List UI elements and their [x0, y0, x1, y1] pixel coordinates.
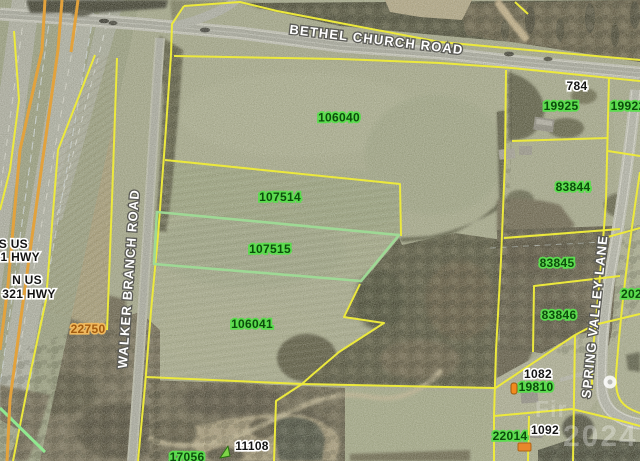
svg-text:83846: 83846	[542, 308, 577, 322]
svg-text:S US: S US	[0, 237, 28, 251]
svg-text:784: 784	[567, 79, 588, 93]
svg-text:20214: 20214	[621, 287, 640, 301]
svg-text:106041: 106041	[231, 317, 273, 331]
svg-text:Fir: Fir	[535, 396, 567, 422]
svg-text:83845: 83845	[540, 256, 575, 270]
svg-text:22014: 22014	[493, 429, 528, 443]
svg-text:1082: 1082	[524, 367, 552, 381]
svg-text:22750: 22750	[71, 322, 106, 336]
svg-text:107514: 107514	[259, 190, 301, 204]
svg-text:2024: 2024	[563, 420, 638, 453]
svg-text:321 HWY: 321 HWY	[2, 287, 55, 301]
svg-text:1092: 1092	[531, 423, 559, 437]
svg-text:83844: 83844	[556, 180, 591, 194]
svg-text:19922: 19922	[611, 99, 640, 113]
svg-text:19810: 19810	[519, 380, 554, 394]
svg-text:1 HWY: 1 HWY	[0, 250, 40, 264]
svg-text:11108: 11108	[235, 439, 269, 453]
svg-text:107515: 107515	[249, 242, 291, 256]
svg-text:19925: 19925	[544, 99, 579, 113]
svg-text:17056: 17056	[170, 450, 205, 461]
svg-text:106040: 106040	[318, 111, 360, 125]
svg-text:N US: N US	[12, 273, 42, 287]
